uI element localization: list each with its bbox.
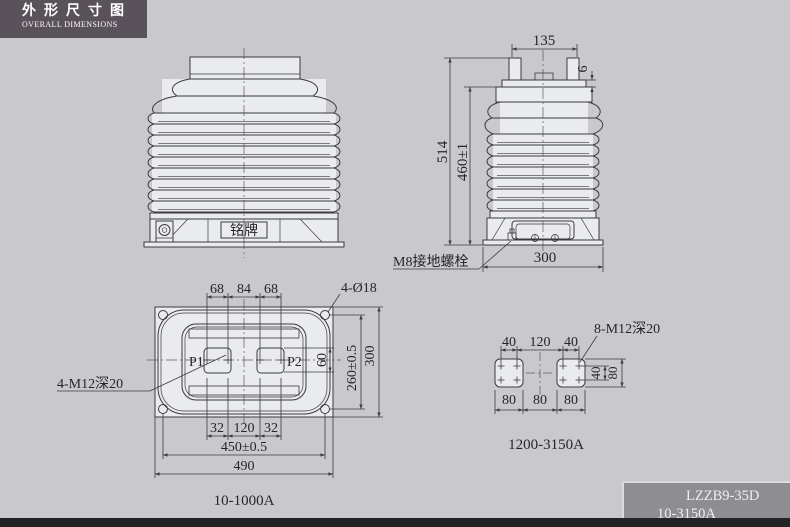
- pad-dim-120: 120: [530, 335, 551, 350]
- dim-450: 450±0.5: [221, 440, 267, 455]
- dim-insulator-height: 460±1: [455, 143, 471, 181]
- plan-caption: 10-1000A: [214, 493, 275, 509]
- dim-32-left: 32: [210, 421, 224, 436]
- terminal-p2-label: P2: [287, 355, 302, 370]
- plan-view: 68 84 68 4-Ø18 P1 P2 60 260±0.5 300 32 1…: [57, 281, 383, 509]
- dim-260: 260±0.5: [345, 345, 360, 391]
- threads-label-plan: 4-M12深20: [57, 376, 123, 392]
- drawing-sheet: { "header": { "title_cn": "外形尺寸图", "titl…: [0, 0, 790, 527]
- model-number: LZZB9-35D: [686, 487, 790, 505]
- dim-top-width: 135: [533, 33, 556, 49]
- pad-left: [495, 359, 523, 387]
- pad-dim-40-left: 40: [502, 335, 516, 350]
- pad-dim-40-v: 40: [588, 367, 603, 380]
- pad-dim-80-v: 80: [605, 367, 620, 380]
- pad-dim-80-mid: 80: [533, 393, 547, 408]
- front-view: 铭牌: [144, 48, 344, 258]
- side-view: 135 6 514 460±1 300 M8接地螺栓: [393, 33, 603, 272]
- dim-flange-thickness: 6: [576, 66, 591, 73]
- ground-bolt-label: M8接地螺栓: [393, 253, 468, 270]
- pad-right: [557, 359, 585, 387]
- pad-dim-80-left: 80: [502, 393, 516, 408]
- pad-centerlines: [526, 352, 554, 396]
- dim-490: 490: [234, 459, 255, 474]
- dim-total-height: 514: [435, 140, 451, 163]
- bottom-border-strip: [0, 518, 790, 527]
- drawing-title-cn: 外形尺寸图: [22, 4, 147, 20]
- dim-68-left: 68: [210, 282, 224, 297]
- pad-caption: 1200-3150A: [508, 437, 584, 453]
- dim-68-right: 68: [264, 282, 278, 297]
- model-title-block: LZZB9-35D 10-3150A: [622, 481, 790, 523]
- dim-base-depth: 300: [534, 250, 557, 266]
- threads-label-pad: 8-M12深20: [594, 321, 660, 337]
- dim-60: 60: [315, 353, 330, 367]
- terminal-p1-label: P1: [189, 355, 204, 370]
- holes-label: 4-Ø18: [341, 281, 377, 296]
- nameplate-label: 铭牌: [230, 222, 258, 239]
- drawing-title-block: 外形尺寸图 OVERALL DIMENSIONS: [0, 0, 147, 38]
- dim-120: 120: [234, 421, 255, 436]
- drawing-title-en: OVERALL DIMENSIONS: [22, 20, 147, 29]
- pad-dim-80-right: 80: [564, 393, 578, 408]
- dim-84: 84: [237, 282, 251, 297]
- dim-32-right: 32: [264, 421, 278, 436]
- engineering-drawing: 铭牌: [0, 0, 790, 527]
- pad-dim-40-right: 40: [564, 335, 578, 350]
- dim-300-plan: 300: [363, 346, 378, 367]
- front-ground-bolt: [156, 221, 173, 242]
- pad-view: 40 120 40 8-M12深20 40 80 80 80 80 1200-3…: [495, 321, 660, 453]
